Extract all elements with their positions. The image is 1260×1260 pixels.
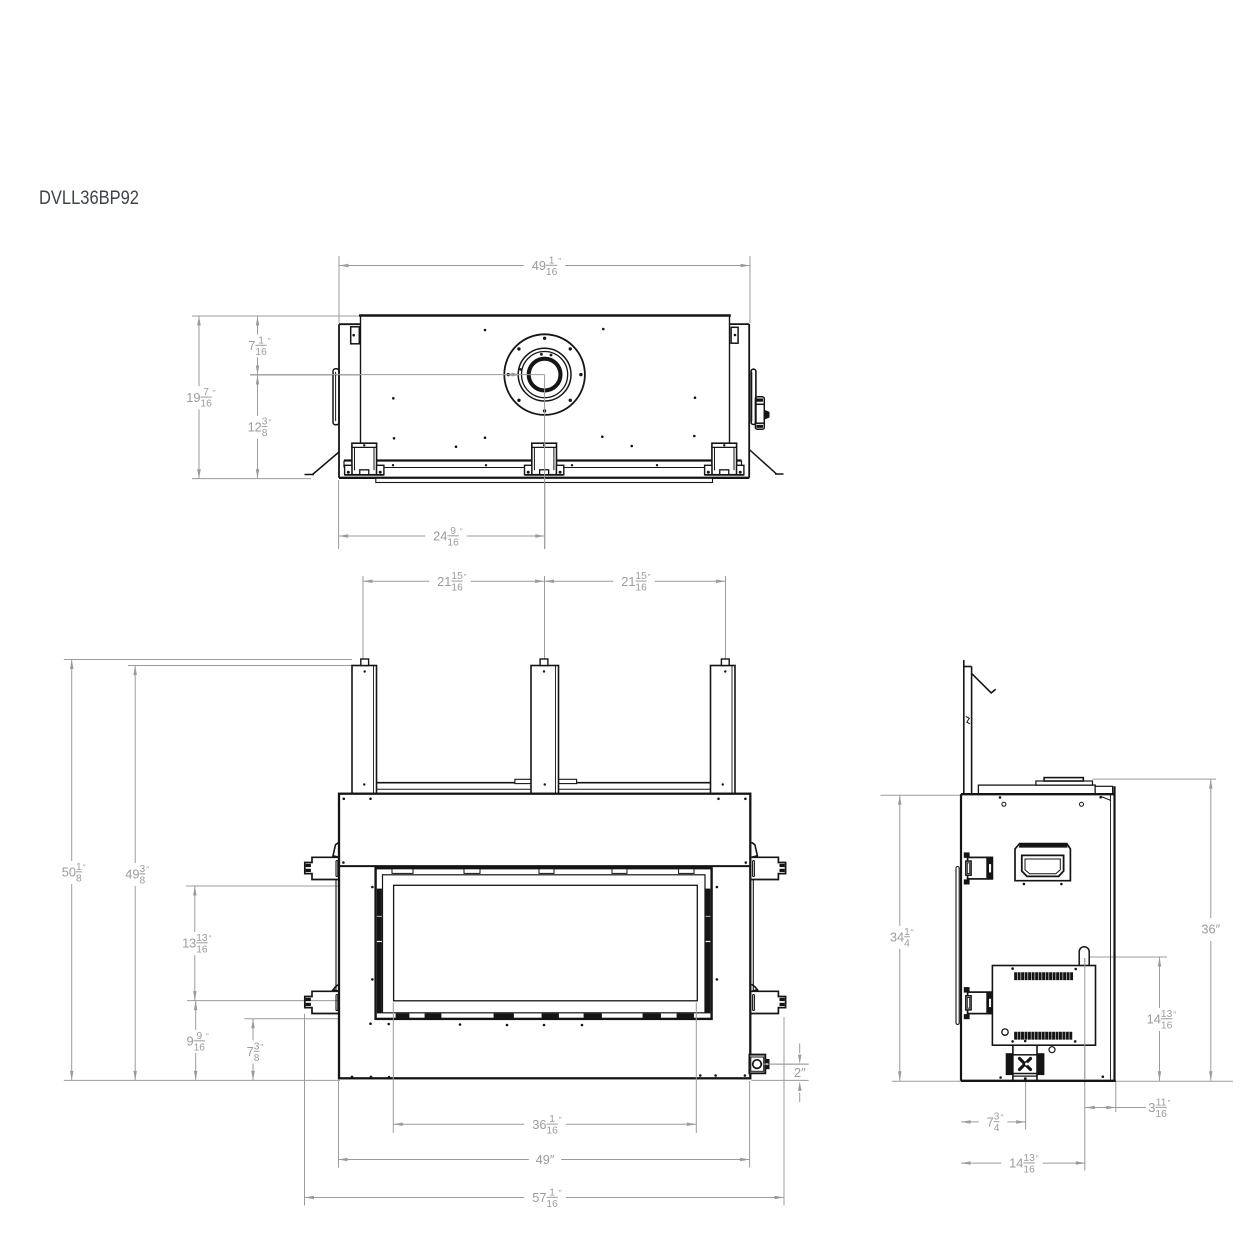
svg-text:”: ” xyxy=(911,928,914,938)
svg-text:3: 3 xyxy=(994,1112,1000,1123)
svg-text:24: 24 xyxy=(433,529,447,544)
svg-text:”: ” xyxy=(460,527,463,537)
svg-text:4: 4 xyxy=(904,938,910,949)
svg-text:7: 7 xyxy=(987,1115,994,1130)
svg-text:13: 13 xyxy=(1161,1009,1173,1020)
svg-text:15: 15 xyxy=(451,571,463,582)
svg-text:21: 21 xyxy=(621,574,635,589)
svg-text:16: 16 xyxy=(635,583,647,594)
svg-text:14: 14 xyxy=(1009,1156,1023,1171)
svg-text:1: 1 xyxy=(549,1114,555,1125)
svg-text:9: 9 xyxy=(450,526,456,537)
svg-text:”: ” xyxy=(648,572,651,582)
svg-text:8: 8 xyxy=(76,873,82,884)
svg-text:”: ” xyxy=(1036,1154,1039,1164)
svg-text:8: 8 xyxy=(254,1053,260,1064)
svg-text:16: 16 xyxy=(196,944,208,955)
svg-text:”: ” xyxy=(1168,1098,1171,1108)
svg-text:19: 19 xyxy=(186,390,200,405)
svg-text:13: 13 xyxy=(1023,1153,1035,1164)
svg-text:13: 13 xyxy=(182,936,196,951)
svg-text:49: 49 xyxy=(532,258,546,273)
svg-text:16: 16 xyxy=(255,347,267,358)
svg-text:”: ” xyxy=(260,1042,263,1052)
svg-text:16: 16 xyxy=(447,537,459,548)
svg-text:16: 16 xyxy=(1161,1020,1173,1031)
svg-text:”: ” xyxy=(83,863,86,873)
svg-text:13: 13 xyxy=(196,933,208,944)
svg-text:4: 4 xyxy=(994,1123,1000,1134)
svg-text:14: 14 xyxy=(1147,1012,1161,1027)
svg-text:8: 8 xyxy=(139,875,145,886)
svg-text:1: 1 xyxy=(76,862,82,873)
svg-text:1: 1 xyxy=(549,255,555,266)
svg-text:2″: 2″ xyxy=(794,1065,806,1080)
svg-text:16: 16 xyxy=(451,583,463,594)
svg-text:1: 1 xyxy=(258,335,264,346)
svg-text:”: ” xyxy=(559,1188,562,1198)
svg-text:9: 9 xyxy=(196,1031,202,1042)
svg-text:21: 21 xyxy=(437,574,451,589)
svg-text:16: 16 xyxy=(1023,1164,1035,1175)
svg-text:”: ” xyxy=(146,865,149,875)
svg-text:16: 16 xyxy=(546,1199,558,1210)
svg-text:7: 7 xyxy=(203,387,209,398)
svg-text:”: ” xyxy=(268,336,271,346)
svg-text:7: 7 xyxy=(247,1044,254,1059)
svg-text:7: 7 xyxy=(248,338,255,353)
svg-text:11: 11 xyxy=(1156,1097,1167,1108)
svg-text:16: 16 xyxy=(546,1126,558,1137)
svg-text:49: 49 xyxy=(125,867,139,882)
svg-text:12: 12 xyxy=(248,419,262,434)
svg-text:34: 34 xyxy=(890,930,904,945)
svg-text:”: ” xyxy=(206,1032,209,1042)
svg-text:3: 3 xyxy=(254,1041,260,1052)
svg-text:DVLL36BP92: DVLL36BP92 xyxy=(39,188,139,209)
svg-text:16: 16 xyxy=(194,1042,206,1053)
svg-text:”: ” xyxy=(558,256,561,266)
svg-text:36″: 36″ xyxy=(1201,922,1220,937)
svg-text:9: 9 xyxy=(186,1034,193,1049)
svg-text:15: 15 xyxy=(635,571,647,582)
svg-text:3: 3 xyxy=(139,864,145,875)
svg-text:3: 3 xyxy=(1148,1100,1155,1115)
svg-text:”: ” xyxy=(269,417,272,427)
svg-text:”: ” xyxy=(209,934,212,944)
svg-text:”: ” xyxy=(213,388,216,398)
svg-text:16: 16 xyxy=(200,399,212,410)
svg-text:”: ” xyxy=(559,1115,562,1125)
svg-text:50: 50 xyxy=(62,865,76,880)
svg-text:”: ” xyxy=(1173,1010,1176,1020)
svg-text:16: 16 xyxy=(1155,1109,1167,1120)
svg-text:3: 3 xyxy=(262,417,268,428)
svg-text:8: 8 xyxy=(262,428,268,439)
svg-text:16: 16 xyxy=(546,267,558,278)
svg-text:1: 1 xyxy=(549,1187,555,1198)
svg-text:”: ” xyxy=(1000,1112,1003,1122)
svg-text:1: 1 xyxy=(904,927,910,938)
svg-text:36: 36 xyxy=(532,1117,546,1132)
svg-text:”: ” xyxy=(464,572,467,582)
svg-text:49″: 49″ xyxy=(536,1152,555,1167)
svg-text:57: 57 xyxy=(532,1190,546,1205)
